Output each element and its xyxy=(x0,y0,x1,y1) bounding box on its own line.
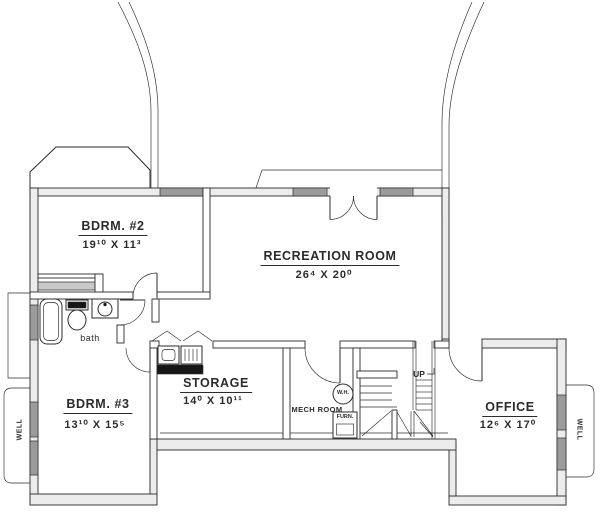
bay-projection-outline xyxy=(30,147,150,188)
room-label-bdrm3: BDRM. #3 xyxy=(63,398,132,411)
window-wells xyxy=(4,293,594,483)
room-dims-storage: 14⁰ X 10¹¹ xyxy=(183,396,243,407)
closet-bdrm2 xyxy=(38,274,103,292)
room-label-mech: MECH ROOM xyxy=(291,406,342,414)
window-well-label-left: WELL xyxy=(17,419,24,441)
window-well-label-right: WELL xyxy=(576,419,583,441)
laundry-appliances xyxy=(157,346,203,374)
bath-fixtures xyxy=(40,299,118,344)
room-label-bath: bath xyxy=(80,334,100,343)
washer xyxy=(181,346,202,364)
room-dims-bdrm3: 13¹⁰ X 15⁵ xyxy=(64,420,125,431)
stairs-up-label: UP xyxy=(413,370,425,379)
floor-plan-page: BDRM. #2 19¹⁰ X 11³ RECREATION ROOM 26⁴ … xyxy=(0,0,600,514)
water-heater-label: W.H. xyxy=(337,391,349,397)
entry-landing-outline xyxy=(256,170,442,188)
dryer xyxy=(158,346,179,364)
room-label-recreation: RECREATION ROOM xyxy=(260,250,399,263)
room-label-bdrm2: BDRM. #2 xyxy=(78,220,147,233)
staircase xyxy=(360,341,435,439)
room-dims-bdrm2: 19¹⁰ X 11³ xyxy=(82,240,141,251)
room-label-storage: STORAGE xyxy=(180,377,252,390)
french-door-opening xyxy=(330,187,377,196)
room-label-office: OFFICE xyxy=(482,401,537,414)
deck-outline-curves xyxy=(118,2,484,217)
toilet-bowl xyxy=(68,310,86,330)
room-dims-office: 12⁶ X 17⁰ xyxy=(480,420,536,431)
room-dims-recreation: 26⁴ X 20⁰ xyxy=(296,270,353,281)
up-arrow xyxy=(427,368,434,374)
furnace-label: FURN. xyxy=(337,415,354,421)
